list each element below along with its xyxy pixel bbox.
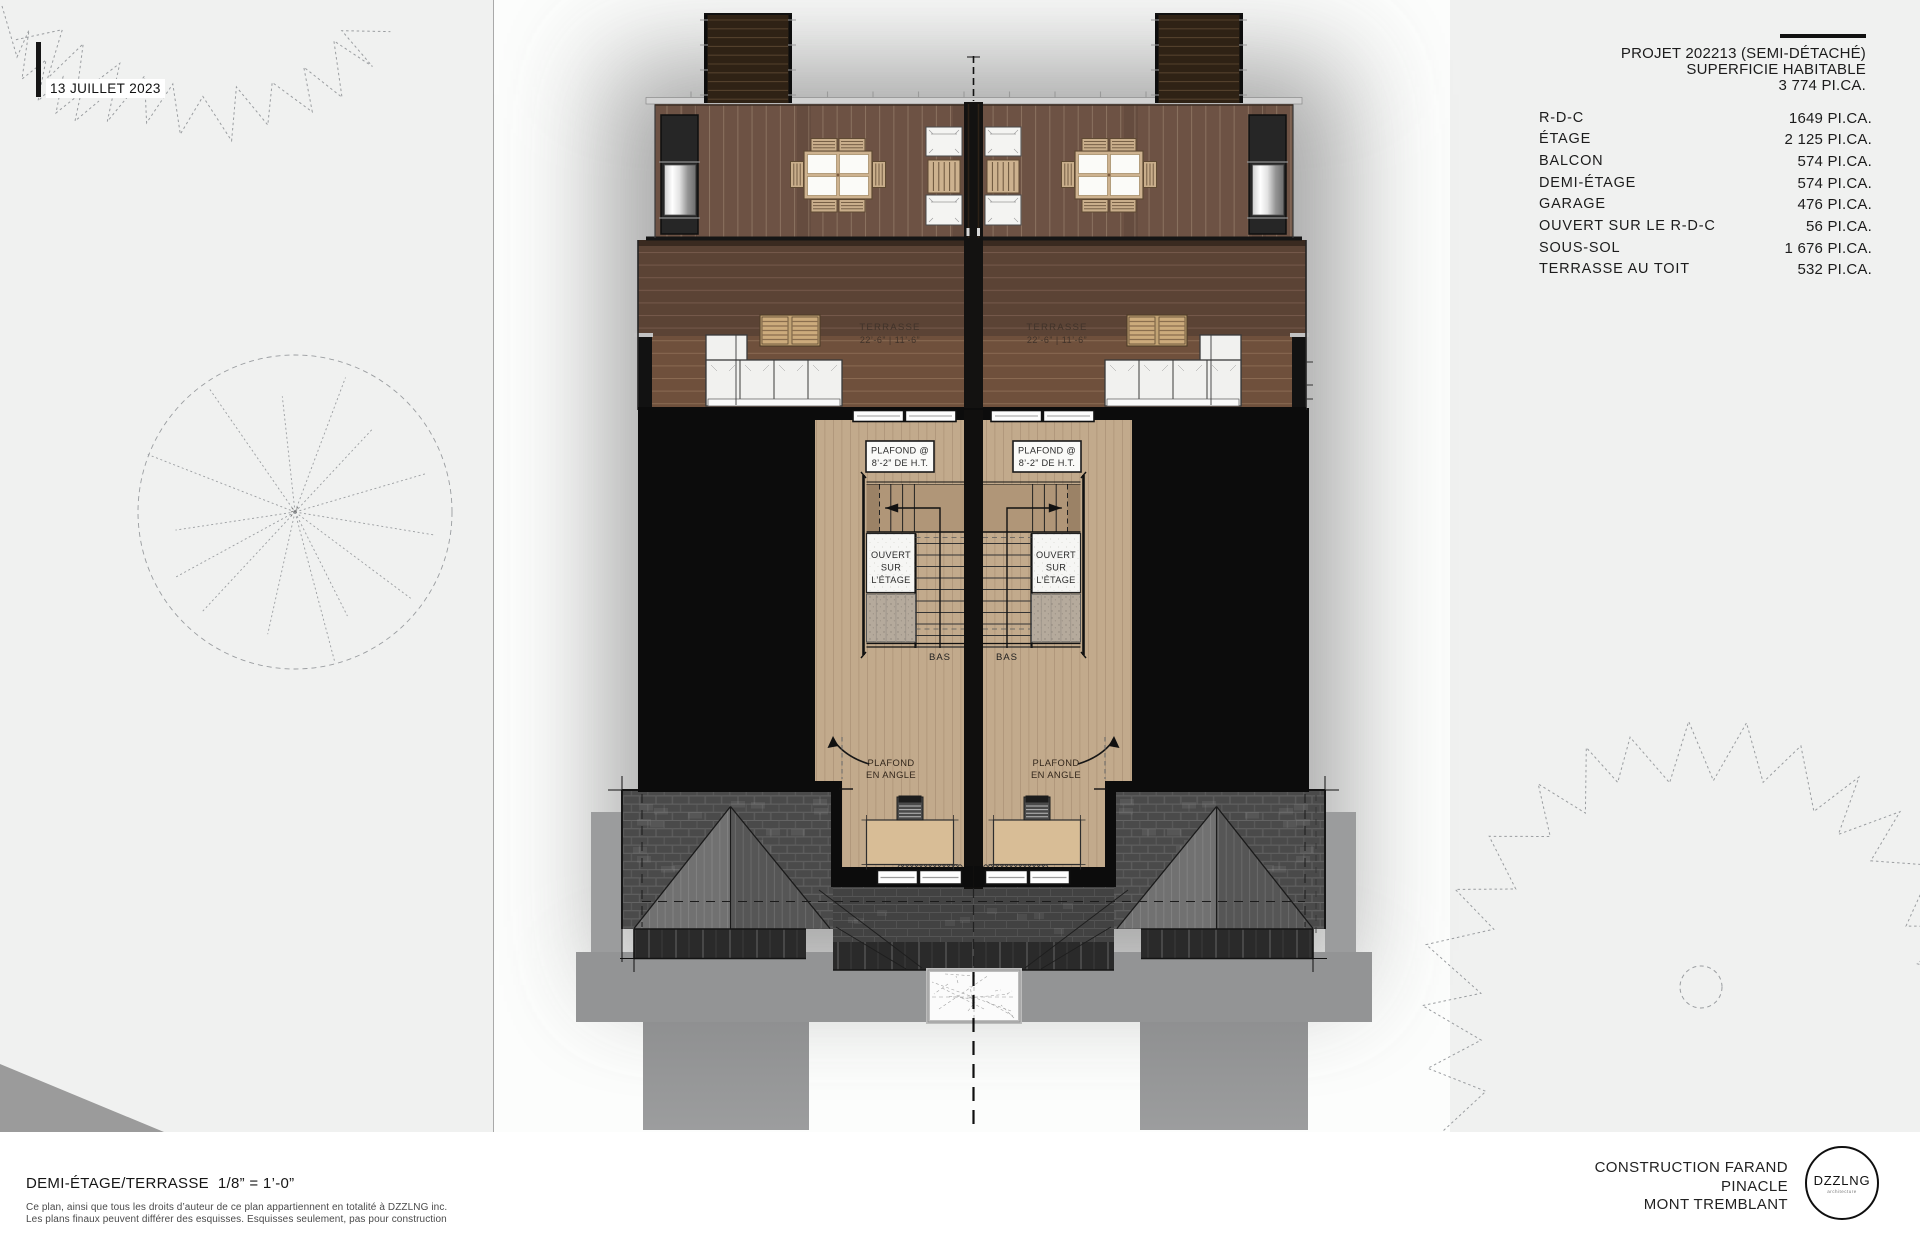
svg-text:TERRASSE: TERRASSE (859, 322, 920, 333)
svg-text:PLAFOND @: PLAFOND @ (1018, 446, 1076, 456)
svg-text:PLAFOND @: PLAFOND @ (871, 446, 929, 456)
svg-text:TERRASSE: TERRASSE (1026, 322, 1087, 333)
svg-text:SUR: SUR (881, 563, 901, 573)
svg-text:8’-2” DE H.T.: 8’-2” DE H.T. (872, 458, 928, 468)
svg-text:8’-2” DE H.T.: 8’-2” DE H.T. (1019, 458, 1075, 468)
svg-text:EN ANGLE: EN ANGLE (866, 769, 916, 780)
svg-text:OUVERT: OUVERT (1036, 550, 1076, 560)
svg-text:22’-6” | 11’-6”: 22’-6” | 11’-6” (860, 335, 920, 345)
svg-text:PLAFOND: PLAFOND (867, 757, 914, 768)
svg-text:OUVERT: OUVERT (871, 550, 911, 560)
svg-text:PLAFOND: PLAFOND (1032, 757, 1079, 768)
svg-text:EN ANGLE: EN ANGLE (1031, 769, 1081, 780)
svg-text:BAS: BAS (996, 652, 1018, 663)
svg-text:L’ÉTAGE: L’ÉTAGE (1036, 575, 1075, 585)
svg-text:22’-6” | 11’-6”: 22’-6” | 11’-6” (1027, 335, 1087, 345)
svg-text:L’ÉTAGE: L’ÉTAGE (871, 575, 910, 585)
svg-text:BAS: BAS (929, 652, 951, 663)
svg-text:SUR: SUR (1046, 563, 1066, 573)
